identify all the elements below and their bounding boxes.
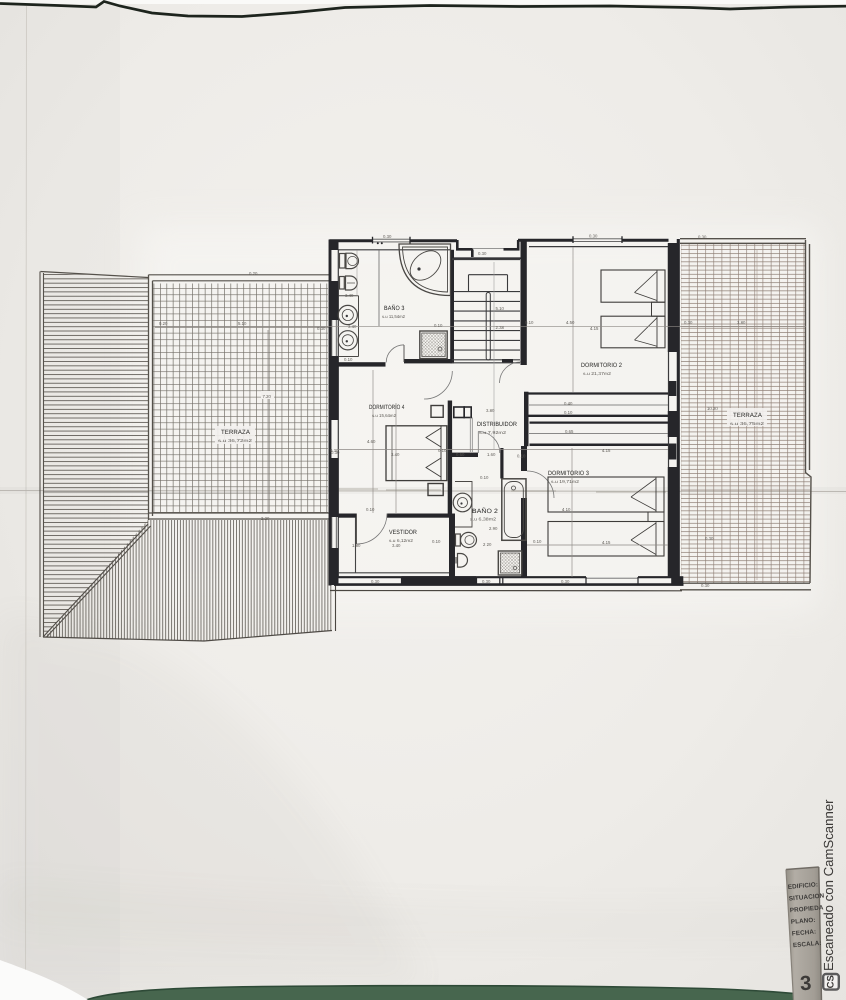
svg-text:0.65: 0.65 bbox=[565, 429, 574, 434]
svg-text:0.10: 0.10 bbox=[438, 448, 447, 453]
svg-text:s.u 15,64m2: s.u 15,64m2 bbox=[372, 413, 397, 418]
svg-text:0.10: 0.10 bbox=[480, 475, 489, 480]
svg-text:s.u 36,72m2: s.u 36,72m2 bbox=[218, 438, 253, 443]
svg-text:3.40: 3.40 bbox=[348, 324, 357, 329]
svg-text:BAÑO 3: BAÑO 3 bbox=[384, 304, 405, 312]
svg-text:2.90: 2.90 bbox=[489, 526, 498, 531]
svg-text:BAÑO 2: BAÑO 2 bbox=[472, 507, 499, 515]
svg-text:0.30: 0.30 bbox=[317, 326, 326, 331]
svg-text:3.40: 3.40 bbox=[392, 543, 401, 548]
svg-text:0.30: 0.30 bbox=[589, 234, 598, 239]
svg-text:0.30: 0.30 bbox=[478, 251, 487, 256]
svg-text:TERRAZA: TERRAZA bbox=[733, 412, 763, 419]
svg-text:0.10: 0.10 bbox=[432, 539, 441, 544]
svg-text:s.u 21,37m2: s.u 21,37m2 bbox=[583, 371, 612, 376]
svg-text:5.10: 5.10 bbox=[496, 306, 505, 311]
svg-text:0.30: 0.30 bbox=[698, 235, 707, 240]
svg-text:3.80: 3.80 bbox=[737, 320, 746, 325]
svg-text:1.80: 1.80 bbox=[352, 543, 361, 548]
svg-text:2.20: 2.20 bbox=[261, 516, 270, 521]
svg-text:s.u 6,38m2: s.u 6,38m2 bbox=[470, 517, 497, 522]
svg-text:4.15: 4.15 bbox=[602, 448, 611, 453]
svg-text:0.30: 0.30 bbox=[331, 450, 340, 455]
svg-text:2 20: 2 20 bbox=[483, 542, 492, 547]
svg-text:0.30: 0.30 bbox=[684, 320, 693, 325]
svg-text:0.30: 0.30 bbox=[383, 234, 392, 239]
svg-text:2.38: 2.38 bbox=[496, 325, 505, 330]
svg-text:0.20: 0.20 bbox=[159, 321, 168, 326]
svg-text:VESTIDOR: VESTIDOR bbox=[389, 529, 417, 536]
svg-text:0.10: 0.10 bbox=[517, 454, 526, 459]
svg-text:0.10: 0.10 bbox=[434, 323, 443, 328]
svg-text:0.10: 0.10 bbox=[344, 357, 353, 362]
svg-text:4.60: 4.60 bbox=[367, 439, 376, 444]
svg-text:3.40: 3.40 bbox=[391, 452, 400, 457]
svg-text:s.u 36,75m2: s.u 36,75m2 bbox=[730, 421, 765, 426]
svg-text:0.60: 0.60 bbox=[456, 452, 465, 457]
svg-text:0.10: 0.10 bbox=[525, 320, 534, 325]
svg-text:Escaneado con CamScanner: Escaneado con CamScanner bbox=[821, 799, 836, 971]
svg-text:DORMITORIO 4: DORMITORIO 4 bbox=[369, 404, 405, 411]
svg-text:0.30: 0.30 bbox=[561, 579, 570, 584]
svg-text:0.30: 0.30 bbox=[482, 579, 491, 584]
svg-text:3.80: 3.80 bbox=[486, 408, 495, 413]
svg-text:0.40: 0.40 bbox=[564, 401, 573, 406]
svg-text:0.30: 0.30 bbox=[371, 579, 380, 584]
svg-text:s.u 19,71m2: s.u 19,71m2 bbox=[551, 479, 580, 484]
svg-text:1.60: 1.60 bbox=[487, 452, 496, 457]
svg-text:DORMITORIO 2: DORMITORIO 2 bbox=[581, 362, 622, 369]
svg-text:0.10: 0.10 bbox=[564, 410, 573, 415]
svg-text:0.20: 0.20 bbox=[249, 271, 258, 276]
svg-text:s.u 7,92m2: s.u 7,92m2 bbox=[479, 430, 507, 435]
svg-text:3: 3 bbox=[799, 972, 812, 996]
svg-text:4.50: 4.50 bbox=[566, 320, 575, 325]
svg-text:5.10: 5.10 bbox=[238, 321, 247, 326]
svg-text:0.10: 0.10 bbox=[533, 539, 542, 544]
svg-text:3.40: 3.40 bbox=[345, 293, 354, 298]
svg-text:DISTRIBUIDOR: DISTRIBUIDOR bbox=[477, 421, 517, 428]
svg-text:TERRAZA: TERRAZA bbox=[221, 429, 251, 436]
svg-text:7.20: 7.20 bbox=[263, 394, 272, 399]
svg-text:0.30: 0.30 bbox=[701, 583, 710, 588]
svg-text:4.15: 4.15 bbox=[590, 326, 599, 331]
svg-text:0.30: 0.30 bbox=[705, 536, 714, 541]
svg-text:0.10: 0.10 bbox=[366, 507, 375, 512]
svg-text:10.20: 10.20 bbox=[707, 406, 718, 411]
svg-text:DORMITORIO 3: DORMITORIO 3 bbox=[548, 470, 589, 477]
svg-text:4.15: 4.15 bbox=[602, 540, 611, 545]
svg-text:s.u 11,54m2: s.u 11,54m2 bbox=[382, 314, 406, 319]
svg-text:CS: CS bbox=[826, 975, 837, 988]
svg-text:4 10: 4 10 bbox=[562, 507, 571, 512]
